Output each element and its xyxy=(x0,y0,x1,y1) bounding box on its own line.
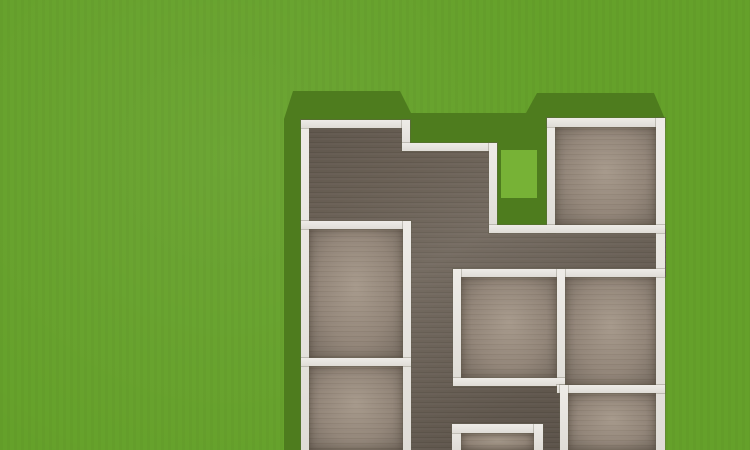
wall-bc-top[interactable] xyxy=(452,424,543,433)
room-top-right[interactable] xyxy=(555,127,656,225)
wall-right-bottom[interactable] xyxy=(557,385,665,393)
wall-left-lower[interactable] xyxy=(301,358,411,366)
lot-grass[interactable] xyxy=(0,0,750,450)
wall-top-recess[interactable] xyxy=(402,143,497,151)
wall-exterior-east[interactable] xyxy=(656,118,665,450)
wall-bc-east[interactable] xyxy=(534,424,543,450)
room-right-middle[interactable] xyxy=(565,277,656,385)
courtyard-sunlit-patch xyxy=(501,150,537,198)
wall-courtyard-east[interactable] xyxy=(547,118,555,233)
wall-center-bottom[interactable] xyxy=(453,378,565,386)
wall-bottom-right-west[interactable] xyxy=(560,385,568,450)
wall-mid-right[interactable] xyxy=(489,225,665,233)
room-left-bottom[interactable] xyxy=(309,366,403,450)
wall-hall-west[interactable] xyxy=(403,221,411,450)
wall-left-mid[interactable] xyxy=(301,221,411,229)
wall-top-right[interactable] xyxy=(547,118,665,127)
room-left-middle[interactable] xyxy=(309,229,403,358)
wall-courtyard-west[interactable] xyxy=(489,143,497,233)
room-bottom-center[interactable] xyxy=(461,433,534,450)
wall-top-left[interactable] xyxy=(301,120,410,128)
wall-exterior-west[interactable] xyxy=(301,120,309,450)
wall-center-divider[interactable] xyxy=(557,269,565,393)
room-center[interactable] xyxy=(461,277,557,378)
room-bottom-right[interactable] xyxy=(568,393,656,450)
wall-center-west[interactable] xyxy=(453,269,461,386)
